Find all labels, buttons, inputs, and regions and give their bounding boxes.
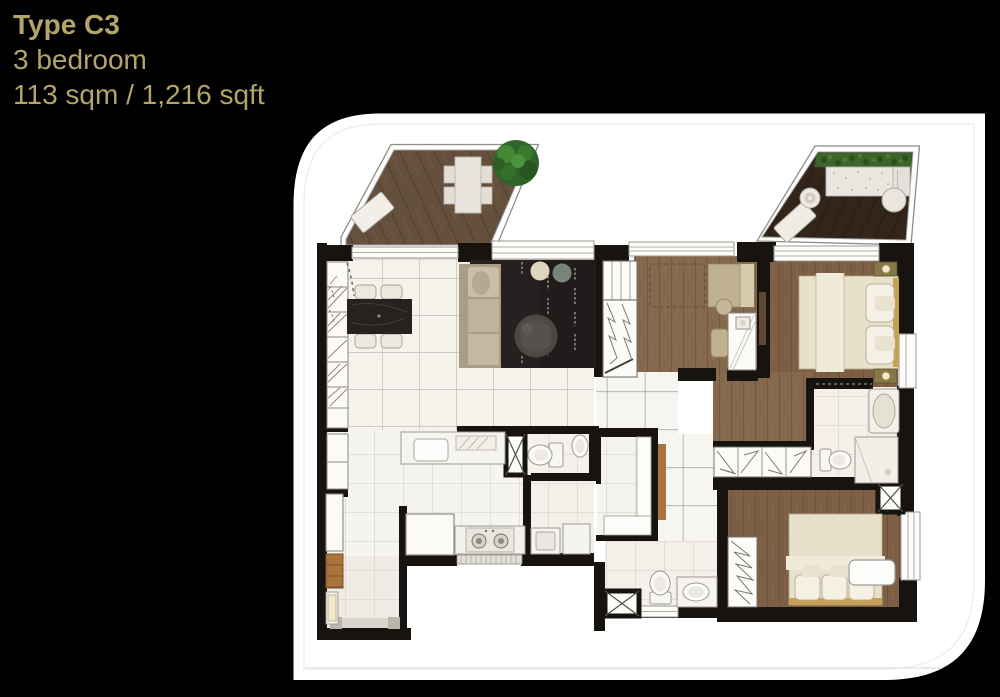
svg-text:Type C3: Type C3 [13, 9, 120, 40]
svg-text:3 bedroom: 3 bedroom [13, 44, 147, 75]
svg-text:113 sqm / 1,216 sqft: 113 sqm / 1,216 sqft [13, 79, 265, 110]
